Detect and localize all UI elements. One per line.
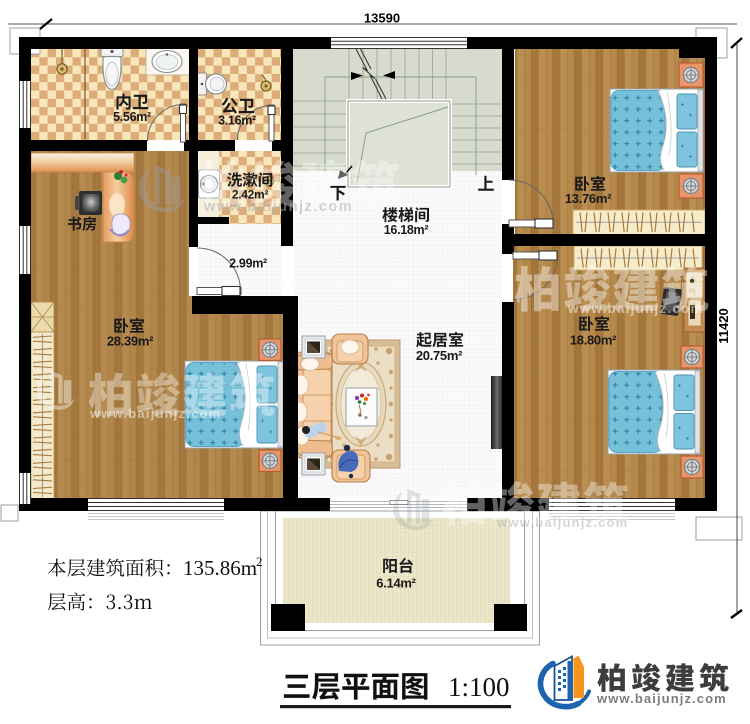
- svg-text:6.14m²: 6.14m²: [376, 576, 416, 591]
- svg-text:28.39m²: 28.39m²: [107, 334, 154, 349]
- svg-text:2.99m²: 2.99m²: [229, 257, 267, 271]
- svg-text:13590: 13590: [364, 11, 400, 26]
- svg-text:16.18m²: 16.18m²: [384, 223, 429, 237]
- svg-text:2: 2: [256, 554, 263, 569]
- svg-text:5.56m²: 5.56m²: [113, 110, 151, 124]
- svg-text:13.76m²: 13.76m²: [565, 191, 612, 206]
- svg-text:18.80m²: 18.80m²: [570, 333, 617, 348]
- svg-text:www.baijunjz.com: www.baijunjz.com: [496, 515, 628, 530]
- svg-text:20.75m²: 20.75m²: [416, 348, 463, 363]
- svg-text:1:100: 1:100: [448, 672, 510, 702]
- svg-text:135.86m: 135.86m: [183, 556, 257, 580]
- svg-text:www.baijunjz.com: www.baijunjz.com: [596, 691, 727, 706]
- svg-text:2.42m²: 2.42m²: [232, 187, 269, 201]
- svg-text:www.baijunjz.com: www.baijunjz.com: [567, 301, 704, 316]
- svg-text:11420: 11420: [716, 308, 731, 343]
- svg-text:3.16m²: 3.16m²: [218, 114, 256, 128]
- svg-text:www.baijunjz.com: www.baijunjz.com: [203, 199, 353, 215]
- svg-text:www.baijunjz.com: www.baijunjz.com: [89, 406, 221, 421]
